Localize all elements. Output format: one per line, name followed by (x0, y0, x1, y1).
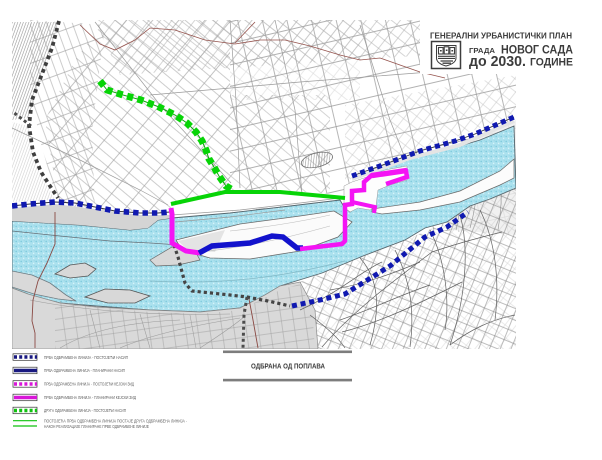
svg-text:ПРВА ОДБРАМБЕНА ЛИНИЈА - ПЛАНИ: ПРВА ОДБРАМБЕНА ЛИНИЈА - ПЛАНИРАНИ КЕЈСК… (44, 395, 136, 400)
svg-text:ГОДИНЕ: ГОДИНЕ (530, 57, 573, 69)
svg-text:до 2030.: до 2030. (469, 54, 526, 70)
svg-text:ДРУГА ОДБРАМБЕНА ЛИНИЈА - ПОСТ: ДРУГА ОДБРАМБЕНА ЛИНИЈА - ПОСТОЈЕЋИ НАСИ… (44, 408, 126, 413)
svg-text:ПОСТОЈЕЋА ПРВА ОДБРАМБЕНА ЛИНИ: ПОСТОЈЕЋА ПРВА ОДБРАМБЕНА ЛИНИЈА ПОСТАЈЕ… (44, 418, 187, 423)
svg-text:ПРВА ОДБРАМБЕНА ЛИНИЈА - ПОСТО: ПРВА ОДБРАМБЕНА ЛИНИЈА - ПОСТОЈЕЋИ КЕЈСК… (44, 382, 134, 387)
svg-text:ОДБРАНА ОД ПОПЛАВА: ОДБРАНА ОД ПОПЛАВА (251, 362, 326, 371)
svg-text:ПРВА ОДБРАМБЕНА ЛИНИЈА - ПЛАНИ: ПРВА ОДБРАМБЕНА ЛИНИЈА - ПЛАНИРАНИ НАСИП (44, 368, 125, 373)
svg-text:ПРВА ОДБРАМБЕНА ЛИНИЈА - ПОСТО: ПРВА ОДБРАМБЕНА ЛИНИЈА - ПОСТОЈЕЋИ НАСИП (44, 355, 128, 360)
svg-text:НАКОН РЕАЛИЗАЦИЈЕ ПЛАНИРАНЕ ПР: НАКОН РЕАЛИЗАЦИЈЕ ПЛАНИРАНЕ ПРВЕ ОДБРАМБ… (44, 424, 149, 429)
svg-text:ГЕНЕРАЛНИ УРБАНИСТИЧКИ ПЛАН: ГЕНЕРАЛНИ УРБАНИСТИЧКИ ПЛАН (430, 31, 572, 41)
